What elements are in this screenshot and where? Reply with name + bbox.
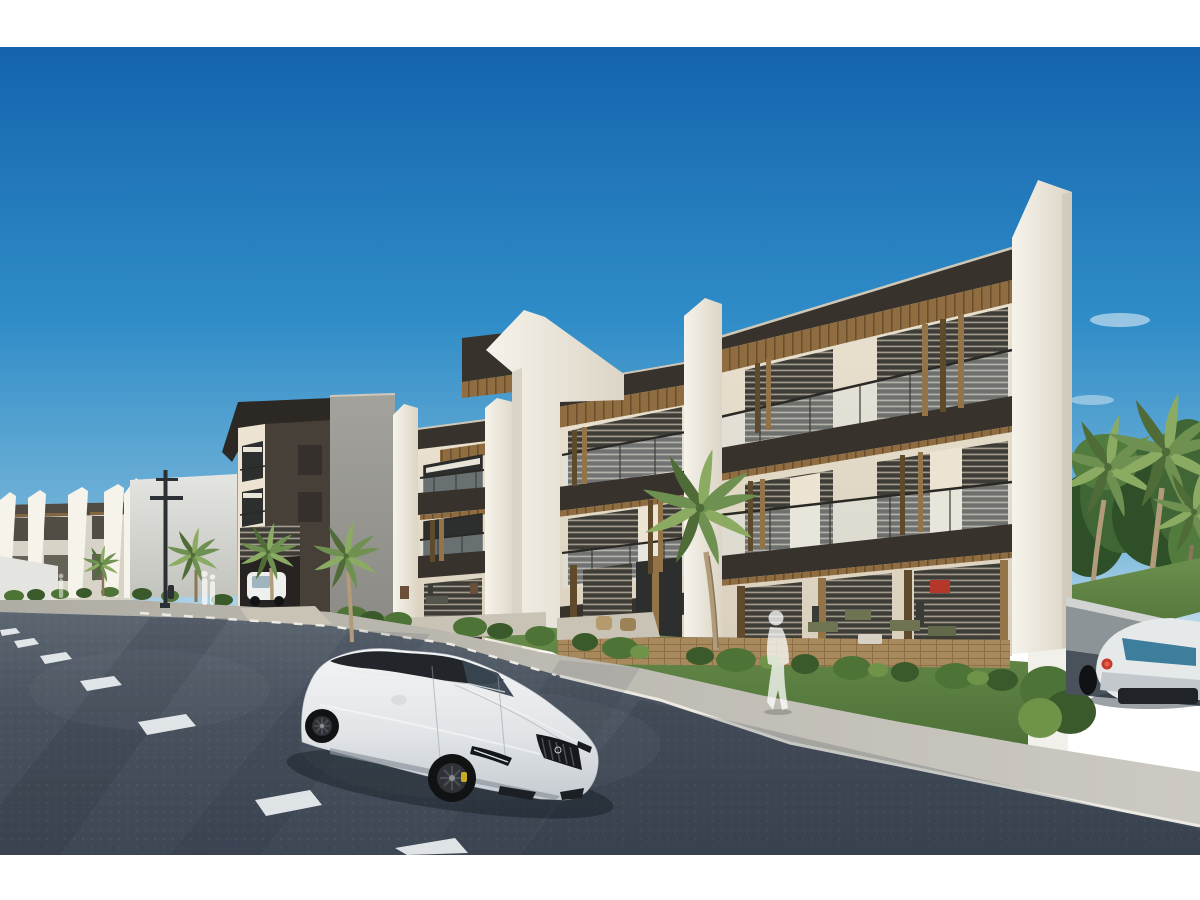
brake-caliper: [461, 772, 467, 782]
left-building-row: [0, 474, 237, 604]
car-rear-wheel: [305, 709, 339, 743]
gray-end-wall: [330, 394, 395, 640]
interior-artwork: [930, 580, 950, 593]
corner-tower-building: [222, 398, 332, 633]
bollard: [168, 585, 174, 599]
architectural-rendering: 3D architectural rendering of a modern t…: [0, 0, 1200, 900]
blank-side-wall: [130, 474, 237, 598]
pedestrian-far: [59, 574, 64, 598]
car-front-wheel: [428, 754, 476, 802]
car-mirror: [391, 695, 407, 705]
render-canvas: 3D architectural rendering of a modern t…: [0, 0, 1200, 900]
